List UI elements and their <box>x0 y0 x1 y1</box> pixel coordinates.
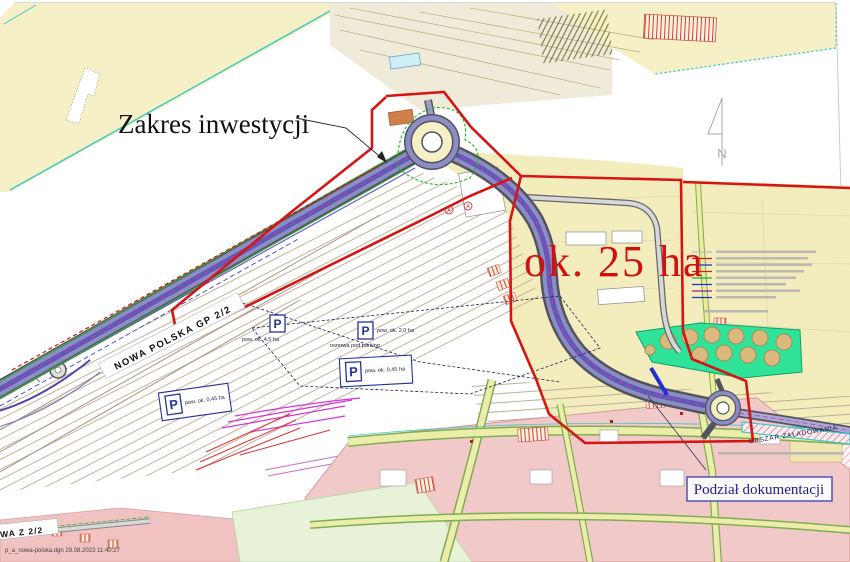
file-stamp: p_a_nowa-polska.dgn 29.08.2023 11:40:27 <box>5 548 121 554</box>
documentation-label: Podział dokumentacji <box>694 482 824 498</box>
parking-icon: P <box>361 324 369 338</box>
parking-icon: P <box>349 364 359 379</box>
north-arrow-icon: N <box>708 98 727 166</box>
hatched-building <box>643 14 716 42</box>
area-label: ok. 25 ha <box>524 237 705 286</box>
arrowhead <box>377 151 387 163</box>
parking-p3: P pow. ok. 0,45 ha <box>339 355 412 387</box>
north-label: N <box>717 146 726 161</box>
parking-icon: P <box>273 317 281 331</box>
investment-scope-label: Zakres inwestycji <box>118 109 309 139</box>
site-plan-page: A A N NOWA POLSKA GP <box>0 0 850 562</box>
site-plan-map: A A N NOWA POLSKA GP <box>0 0 850 562</box>
investment-scope-callout: Zakres inwestycji <box>118 109 387 163</box>
parking-p2-note: rezerwa pod parking <box>330 343 380 349</box>
building-orange <box>388 109 414 125</box>
parking-p1-area: pow. ok. 4,5 ha <box>242 337 280 343</box>
parking-p2-area: pow. ok. 2,0 ha <box>377 328 415 334</box>
documentation-box: Podział dokumentacji <box>687 477 832 501</box>
